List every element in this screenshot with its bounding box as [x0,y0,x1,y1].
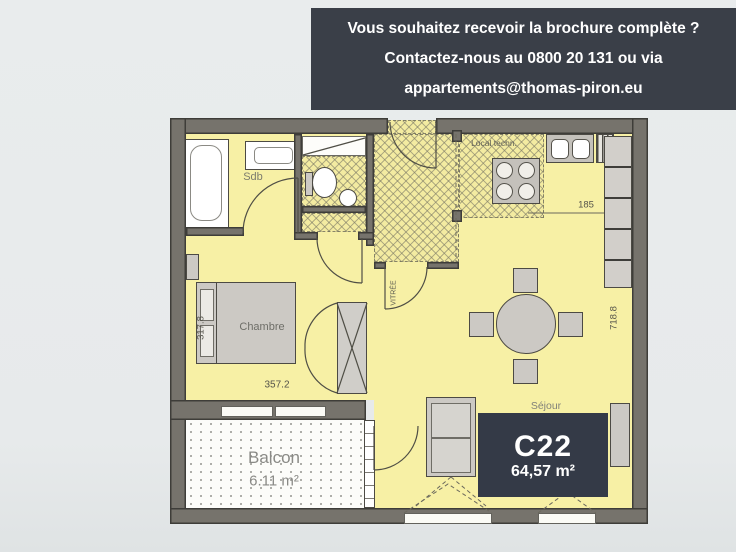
sejour-window-1 [404,513,492,524]
label-balcon-area: 6.11 m² [249,473,299,490]
sofa-cushion [431,438,471,473]
sejour-window-2 [538,513,596,524]
wc-hand-basin [339,189,357,207]
wall-wc-bottom [302,206,366,213]
chair-right [558,312,583,337]
stove [492,158,540,204]
burner [496,183,513,200]
sink-bowl [572,139,590,159]
bathroom-sink [245,141,301,170]
wall-top-right [436,118,648,134]
dining-table [496,294,556,354]
label-chambre: Chambre [239,321,284,333]
burner [496,162,513,179]
chair-bottom [513,359,538,384]
wall-sdb-bottom [186,227,244,236]
wardrobe [337,302,367,394]
floor-plan-page: Vous souhaitez recevoir la brochure comp… [0,0,736,552]
duct-shaft [302,136,366,156]
label-sdb: Sdb [243,171,263,183]
kitchen-cabinet-column [604,136,632,288]
wall-right [632,118,648,524]
dim-sejour-depth: 718.8 [609,306,620,330]
toilet-bowl [312,167,337,198]
chambre-window-2 [275,406,326,417]
wall-pier-kitchen-top [452,130,462,142]
kitchen-sink [546,134,594,163]
dim-chambre-width: 357.2 [264,380,289,391]
wall-hall-bottom-a [374,262,386,269]
label-local-techn: Local techn. [471,138,517,148]
bathtub [184,139,229,229]
banner-line-2: Contactez-nous au 0800 20 131 ou via [311,44,736,74]
hall-corridor-hatch [302,213,366,232]
wall-chambre-top-b [358,232,374,240]
chair-top [513,268,538,293]
wall-wc-hall [366,134,374,246]
sink-bowl [551,139,569,159]
banner-line-3: appartements@thomas-piron.eu [311,74,736,104]
chair-left [469,312,494,337]
wall-sdb-wc [294,134,302,236]
sofa-cushion [431,403,471,438]
wall-chambre-top-a [294,232,318,240]
bathtub-basin [190,145,222,221]
wall-left [170,118,186,524]
dim-chambre-depth: 317.8 [196,316,207,340]
sideboard [610,403,630,467]
dim-kitchen-width: 185 [578,200,594,211]
sink-basin [254,147,293,164]
entry-threshold-hatch [388,120,436,134]
sofa [426,397,476,477]
burner [518,162,535,179]
label-balcon: Balcon [248,448,300,468]
banner-line-1: Vous souhaitez recevoir la brochure comp… [311,14,736,44]
label-entry-door: VITRÉE [391,280,398,305]
label-sejour: Séjour [531,400,561,412]
contact-banner: Vous souhaitez recevoir la brochure comp… [311,8,736,110]
burner [518,183,535,200]
wall-pier-kitchen-bottom [452,210,462,222]
wall-hall-bottom-b [427,262,459,269]
wall-top-left [170,118,388,134]
balcony-glass-divider [364,420,375,508]
chambre-window-1 [221,406,273,417]
unit-area: 64,57 m² [511,463,575,481]
unit-badge: C22 64,57 m² [478,413,608,497]
unit-number: C22 [514,430,572,463]
radiator [186,254,199,280]
entrance-hall-hatch [374,134,459,262]
